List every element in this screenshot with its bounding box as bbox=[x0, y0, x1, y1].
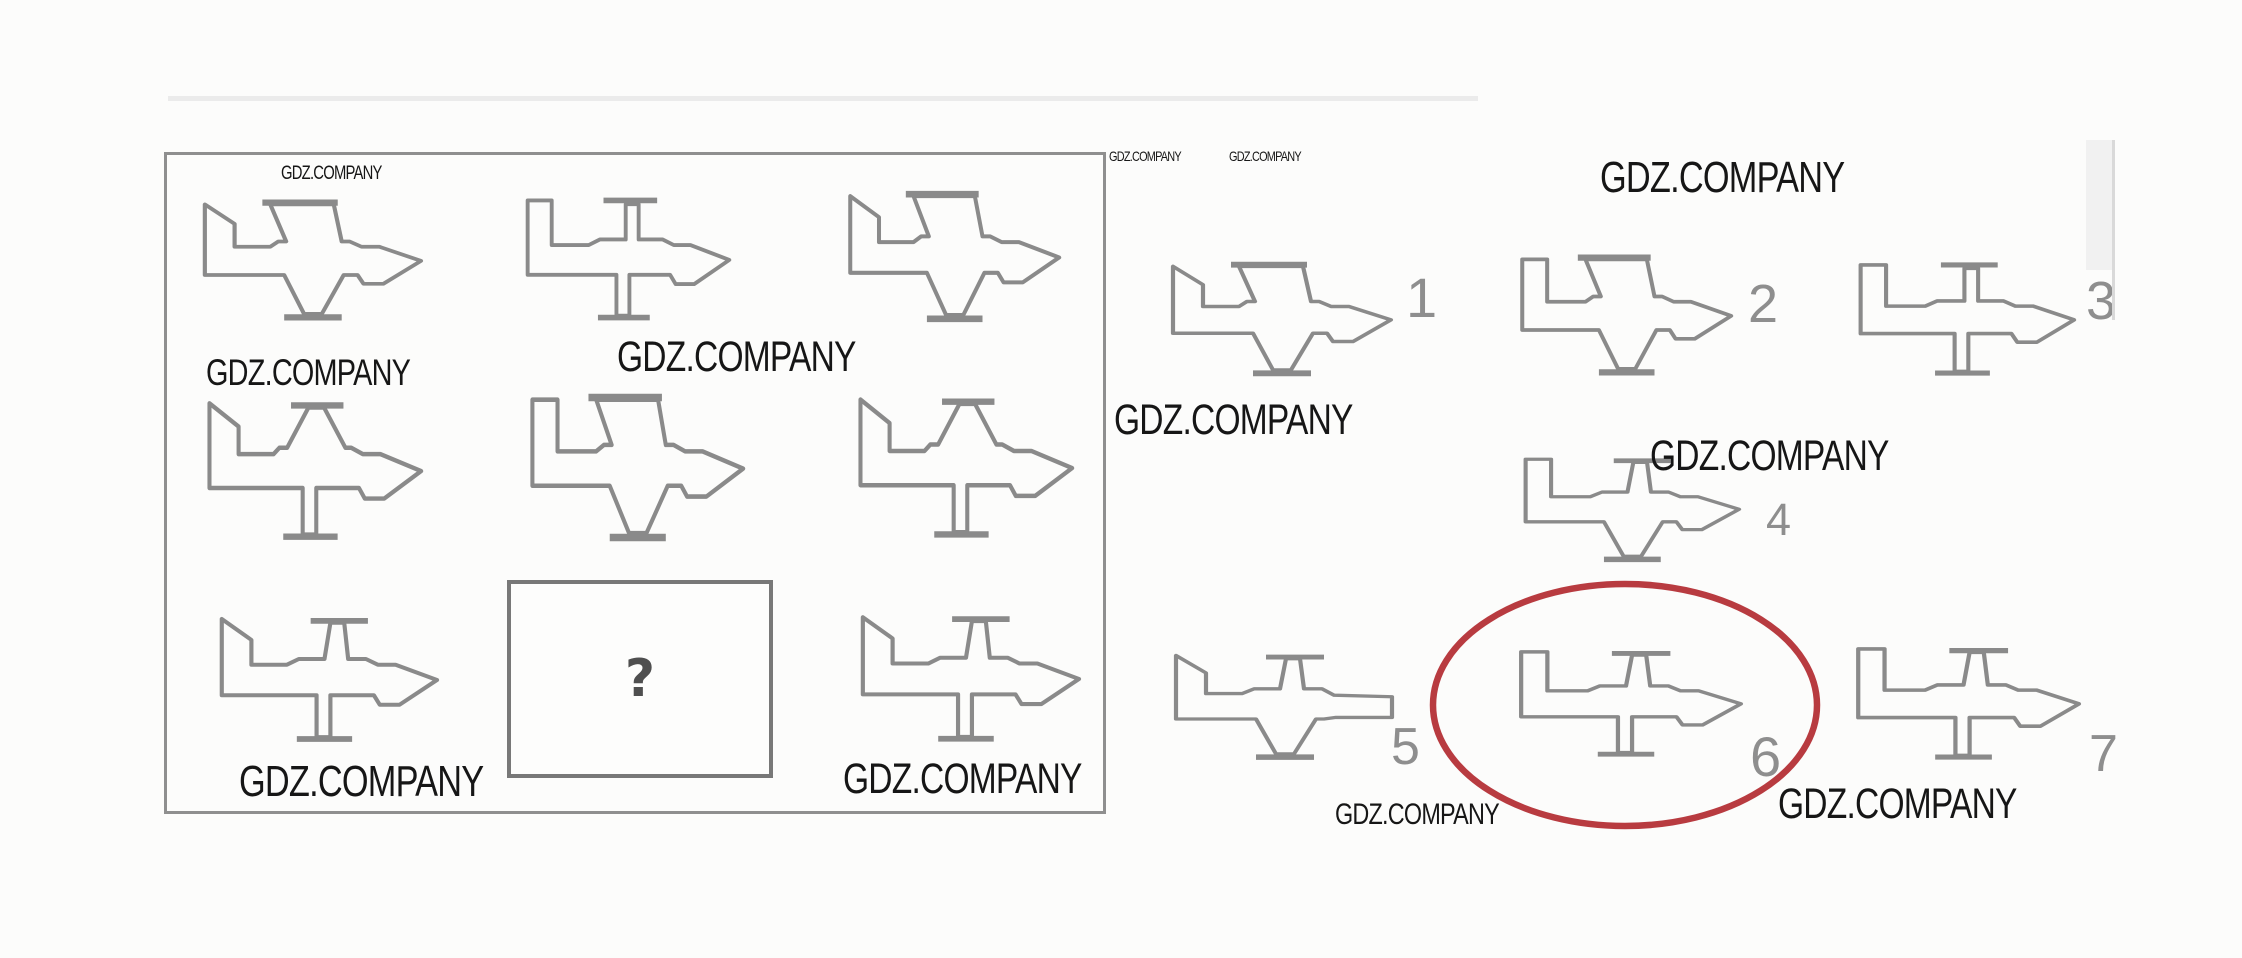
option-number-1: 1 bbox=[1406, 270, 1437, 326]
watermark-text: GDZ.COMPANY bbox=[1229, 149, 1301, 163]
option-plane-6[interactable] bbox=[1503, 634, 1745, 772]
option-number-4: 4 bbox=[1766, 497, 1791, 542]
option-plane-3[interactable] bbox=[1843, 246, 2078, 392]
grid-plane-r2c3 bbox=[843, 376, 1076, 558]
airplane-outline-icon bbox=[205, 204, 421, 313]
airplane-outline-icon bbox=[850, 196, 1059, 315]
airplane-outline-icon bbox=[860, 400, 1072, 533]
grid-plane-r1c1 bbox=[187, 185, 425, 335]
airplane-outline-icon bbox=[532, 400, 743, 533]
puzzle-page: ? GDZ.COMPANYGDZ.COMPANYGDZ.COMPANYGDZ.C… bbox=[0, 0, 2242, 958]
airplane-outline-icon bbox=[528, 200, 730, 315]
scan-artifact bbox=[2112, 140, 2115, 320]
watermark-text: GDZ.COMPANY bbox=[206, 354, 410, 391]
grid-plane-r2c1 bbox=[192, 380, 425, 560]
watermark-text: GDZ.COMPANY bbox=[1650, 435, 1889, 478]
watermark-text: GDZ.COMPANY bbox=[1109, 149, 1181, 163]
watermark-text: GDZ.COMPANY bbox=[281, 164, 382, 183]
option-number-6: 6 bbox=[1750, 729, 1781, 785]
scan-artifact bbox=[168, 96, 1478, 101]
option-plane-1[interactable] bbox=[1155, 248, 1395, 390]
airplane-outline-icon bbox=[1176, 655, 1392, 753]
question-mark: ? bbox=[625, 649, 655, 709]
airplane-outline-icon bbox=[1521, 652, 1741, 753]
grid-plane-r3c3 bbox=[845, 596, 1083, 760]
airplane-outline-icon bbox=[1858, 649, 2079, 755]
grid-plane-r1c2 bbox=[511, 180, 733, 338]
watermark-text: GDZ.COMPANY bbox=[1114, 399, 1353, 442]
watermark-text: GDZ.COMPANY bbox=[843, 758, 1082, 801]
watermark-text: GDZ.COMPANY bbox=[1600, 156, 1844, 200]
watermark-text: GDZ.COMPANY bbox=[239, 760, 483, 804]
watermark-text: GDZ.COMPANY bbox=[617, 336, 856, 379]
watermark-text: GDZ.COMPANY bbox=[1335, 800, 1499, 830]
airplane-outline-icon bbox=[1861, 265, 2074, 371]
option-plane-5[interactable] bbox=[1158, 638, 1398, 773]
option-number-7: 7 bbox=[2089, 728, 2118, 780]
airplane-outline-icon bbox=[863, 617, 1079, 737]
airplane-outline-icon bbox=[1522, 259, 1731, 368]
airplane-outline-icon bbox=[222, 619, 437, 737]
option-number-5: 5 bbox=[1391, 721, 1420, 773]
airplane-outline-icon bbox=[1173, 266, 1391, 370]
option-plane-7[interactable] bbox=[1840, 630, 2083, 776]
scan-artifact bbox=[2086, 140, 2114, 270]
watermark-text: GDZ.COMPANY bbox=[1778, 783, 2017, 826]
option-plane-2[interactable] bbox=[1505, 240, 1735, 390]
airplane-outline-icon bbox=[209, 403, 421, 534]
grid-plane-r2c2 bbox=[515, 376, 747, 559]
grid-plane-r1c3 bbox=[833, 175, 1063, 338]
grid-plane-r3c1 bbox=[204, 598, 441, 760]
missing-cell-box: ? bbox=[507, 580, 773, 778]
option-number-2: 2 bbox=[1748, 277, 1778, 331]
